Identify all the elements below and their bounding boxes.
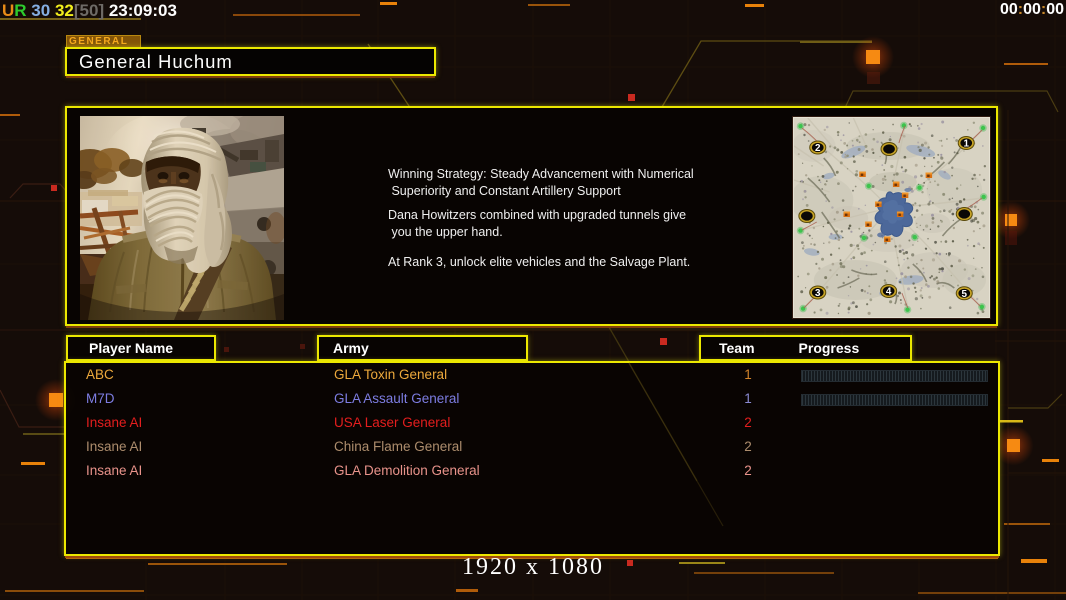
svg-text:2: 2: [815, 143, 821, 154]
svg-text:5: 5: [962, 289, 968, 300]
svg-text:4: 4: [886, 287, 892, 298]
svg-text:3: 3: [815, 288, 821, 299]
svg-text:1: 1: [963, 139, 969, 150]
